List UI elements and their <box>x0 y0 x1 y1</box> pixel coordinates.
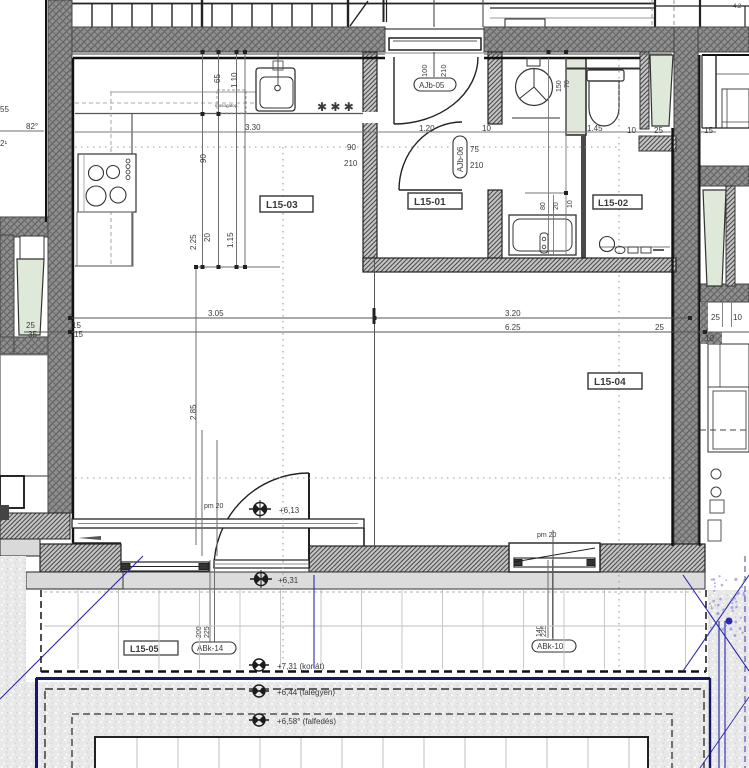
svg-text:3.20: 3.20 <box>505 309 521 318</box>
svg-text:+6,13: +6,13 <box>279 506 300 515</box>
svg-text:L15-05: L15-05 <box>130 644 159 654</box>
svg-text:L15-02: L15-02 <box>598 198 628 209</box>
svg-text:90: 90 <box>347 143 356 152</box>
svg-text:3.30: 3.30 <box>245 123 261 132</box>
svg-text:L15-03: L15-03 <box>266 200 298 211</box>
svg-text:70: 70 <box>564 80 571 88</box>
svg-text:2.85: 2.85 <box>189 404 198 420</box>
svg-text:80: 80 <box>540 202 547 210</box>
svg-text:55: 55 <box>0 105 9 114</box>
svg-text:1.20: 1.20 <box>419 124 435 133</box>
svg-text:82°: 82° <box>26 122 38 131</box>
svg-text:35: 35 <box>28 330 37 339</box>
svg-text:4.2: 4.2 <box>733 4 742 10</box>
svg-text:20: 20 <box>553 202 560 210</box>
svg-text:150: 150 <box>556 80 563 92</box>
svg-text:210: 210 <box>470 161 484 170</box>
svg-text:1.10: 1.10 <box>230 72 239 88</box>
svg-text:225: 225 <box>541 625 548 637</box>
svg-text:2¹: 2¹ <box>0 139 7 148</box>
svg-text:1.15: 1.15 <box>226 232 235 248</box>
svg-text:25: 25 <box>26 321 35 330</box>
svg-text:3.05: 3.05 <box>208 309 224 318</box>
svg-text:1.45: 1.45 <box>587 124 603 133</box>
svg-text:25: 25 <box>654 126 663 135</box>
svg-text:25: 25 <box>655 323 664 332</box>
svg-text:pm 20: pm 20 <box>204 503 224 510</box>
svg-text:10: 10 <box>482 124 491 133</box>
svg-text:210: 210 <box>439 64 448 77</box>
svg-text:✱ ✱ ✱: ✱ ✱ ✱ <box>317 100 354 114</box>
svg-text:25: 25 <box>711 313 720 322</box>
svg-text:10: 10 <box>733 313 742 322</box>
svg-text:+6,58° (falfedés): +6,58° (falfedés) <box>277 717 336 726</box>
svg-text:10: 10 <box>627 126 636 135</box>
svg-text:65: 65 <box>213 74 222 83</box>
svg-text:pm 20: pm 20 <box>537 532 557 539</box>
svg-text:10: 10 <box>705 334 714 343</box>
svg-text:+6,31: +6,31 <box>278 576 299 585</box>
svg-text:ABk-10: ABk-10 <box>537 642 564 651</box>
svg-text:+7,31 (korlát): +7,31 (korlát) <box>277 662 325 671</box>
svg-text:+6,44 (falegyen): +6,44 (falegyen) <box>277 688 335 697</box>
svg-text:210: 210 <box>344 159 358 168</box>
svg-text:75: 75 <box>470 145 479 154</box>
svg-text:15: 15 <box>72 321 81 330</box>
svg-text:225: 225 <box>204 626 211 638</box>
svg-text:AJb-06: AJb-06 <box>456 146 465 172</box>
svg-text:10: 10 <box>567 200 574 208</box>
svg-text:L15-04: L15-04 <box>594 377 626 388</box>
svg-text:100: 100 <box>420 64 429 77</box>
svg-text:L15-01: L15-01 <box>414 197 446 208</box>
svg-text:6.25: 6.25 <box>505 323 521 332</box>
svg-text:AJb-05: AJb-05 <box>419 81 445 90</box>
svg-text:ABk-14: ABk-14 <box>197 644 224 653</box>
svg-text:90: 90 <box>199 154 208 163</box>
svg-text:15: 15 <box>74 330 83 339</box>
svg-text:15: 15 <box>704 126 713 135</box>
svg-text:2.25: 2.25 <box>189 234 198 250</box>
svg-text:20: 20 <box>203 233 212 242</box>
